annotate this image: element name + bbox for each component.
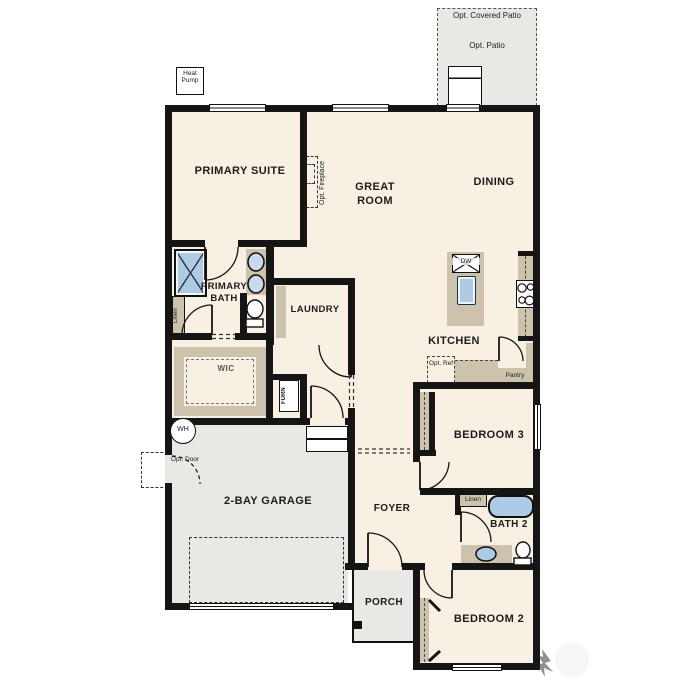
bedroom3-label: BEDROOM 3 (443, 428, 535, 442)
opt-covered-patio-label: Opt. Covered Patio (437, 11, 537, 20)
window-primary-suite (209, 104, 266, 112)
wall-foyer-front-b (402, 563, 413, 570)
wall-kitchen-bottom (413, 382, 540, 389)
garage-door-opening (189, 603, 334, 610)
porch-label: PORCH (356, 596, 412, 609)
opt-door-dashed-box (141, 452, 168, 488)
opt-ref-label: Opt. Ref (428, 360, 454, 367)
great-room-label: GREAT ROOM (341, 180, 409, 209)
bed2-closet (420, 598, 429, 662)
dishwasher-label: DW (452, 258, 480, 265)
kitchen-back-counter (455, 360, 498, 383)
wall-furn-top (273, 374, 300, 380)
wall-suite-right (300, 112, 307, 247)
wall-wic-right (266, 345, 273, 418)
foyer-label: FOYER (364, 502, 420, 515)
laundry-label: LAUNDRY (283, 304, 347, 316)
floor-plan: Opt. Covered Patio Opt. Patio Heat Pump … (0, 0, 687, 687)
wall-hall-right-b (348, 408, 355, 425)
porch-post (354, 621, 362, 629)
foyer-floor (352, 425, 413, 570)
wall-foyer-right (413, 389, 420, 462)
opt-patio-label: Opt. Patio (437, 41, 537, 50)
heat-pump-label: Heat Pump (177, 70, 203, 85)
counter-cap-bottom (518, 336, 533, 341)
kitchen-label: KITCHEN (413, 334, 495, 348)
wall-bath-bottom-a (165, 333, 212, 340)
wh-label: WH (170, 426, 196, 434)
window-great-room (332, 104, 389, 112)
bath2-vanity (461, 545, 512, 563)
pantry-label: Pantry (497, 372, 533, 379)
patio-slider-door (446, 104, 480, 112)
opt-fireplace-label: Opt. Fireplace (319, 150, 330, 216)
dining-label: DINING (459, 175, 529, 189)
wall-laundry-right (348, 278, 355, 345)
window-bedroom3 (534, 404, 541, 450)
bath2-label: BATH 2 (487, 518, 531, 531)
garage-door-dashed (189, 537, 344, 603)
bed3-closet-wall (429, 392, 435, 454)
bed3-closet-corner (420, 450, 436, 456)
wic-label: WIC (202, 364, 250, 373)
wall-garage-foyer (348, 425, 355, 570)
wall-hall-right-a (348, 345, 355, 375)
garage-label: 2-BAY GARAGE (224, 494, 312, 508)
wall-bath2-bottom-b (452, 563, 540, 570)
island-sink (457, 276, 476, 305)
garage-step-2 (306, 439, 348, 452)
cooktop (516, 280, 534, 308)
primary-suite-label: PRIMARY SUITE (194, 164, 286, 178)
bed3-closet (420, 392, 429, 450)
wall-bath-laundry (266, 247, 274, 345)
bath2-linen-label: Linen (459, 496, 487, 503)
counter-cap-top (518, 251, 533, 256)
garage-step-1 (306, 426, 348, 439)
opt-door-label: Opt. Door (170, 456, 200, 463)
wall-bath-bottom-b (235, 333, 266, 340)
primary-linen-label: Linen (173, 299, 184, 333)
primary-bath-label: PRIMARY BATH (193, 281, 255, 306)
wall-furn-right (300, 374, 307, 418)
wall-left (165, 105, 172, 610)
furnace-label: FURN (281, 383, 297, 409)
patio-equipment (448, 66, 482, 106)
wall-laundry-top (266, 278, 355, 285)
wall-suite-bottom-b (238, 240, 307, 247)
window-bedroom2 (452, 664, 502, 671)
wall-porch-bed2 (413, 570, 420, 670)
wall-bath2-bottom-a (413, 563, 425, 570)
watermark (537, 643, 589, 677)
wall-suite-bottom-a (165, 240, 205, 247)
bedroom2-label: BEDROOM 2 (443, 612, 535, 626)
